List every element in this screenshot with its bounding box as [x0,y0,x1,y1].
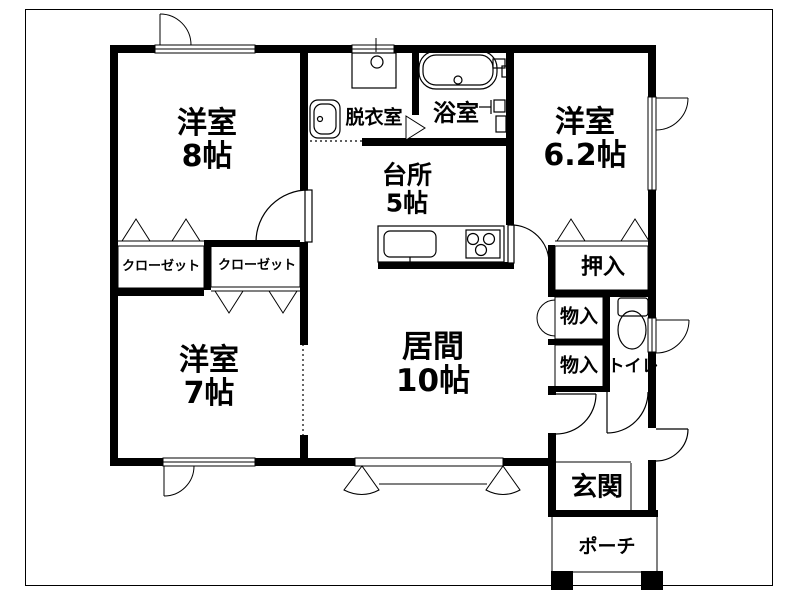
room-name: ポーチ [578,537,635,558]
room-name: 台所 [382,162,432,190]
room-name: 洋室 [179,344,239,377]
room-size: 5帖 [382,189,432,217]
label-bathroom: 浴室 [433,101,479,126]
label-closet-left: クローゼット [122,260,200,274]
room-size: 8帖 [177,140,237,173]
outer-frame [26,10,773,586]
room-name: 居間 [396,330,470,364]
label-kitchen: 台所 5帖 [382,162,432,217]
label-dressing-room: 脱衣室 [345,108,402,129]
room-size: 10帖 [396,364,470,398]
stove-icon [466,230,500,258]
door-swings [256,190,688,461]
label-porch: ポーチ [578,537,635,558]
label-closet-right: クローゼット [218,259,296,273]
toilet-icon [618,298,648,349]
room-name: クローゼット [122,260,200,274]
sliding-doors [303,141,362,436]
room-name: トイレ [608,358,659,377]
room-name: 洋室 [543,106,626,139]
room-name: 脱衣室 [345,108,402,129]
washer-pan-icon [352,53,396,88]
label-storage-upper: 物入 [560,307,598,328]
floor-plan-drawing [0,0,800,600]
label-living-room: 居間 10帖 [396,330,470,398]
room-name: 物入 [560,356,598,377]
room-name: 押入 [581,256,625,280]
room-name: 洋室 [177,107,237,140]
label-bedroom-7: 洋室 7帖 [179,344,239,410]
room-name: 玄関 [571,474,623,503]
floor-plan: 洋室 8帖 クローゼット クローゼット 洋室 7帖 脱衣室 浴室 台所 5帖 洋… [0,0,800,600]
label-storage-lower: 物入 [560,356,598,377]
bath-faucet-icon [479,100,506,132]
label-oshiire: 押入 [581,256,625,280]
room-name: 物入 [560,307,598,328]
room-name: クローゼット [218,259,296,273]
label-toilet: トイレ [608,358,659,377]
kitchen-counter-icon [378,226,504,269]
label-entrance: 玄関 [571,474,623,503]
porch-pillars [551,571,663,590]
room-size: 7帖 [179,377,239,410]
label-bedroom-62: 洋室 6.2帖 [543,106,626,172]
basin-sink-icon [310,100,340,138]
room-name: 浴室 [433,101,479,126]
fixtures [310,46,648,349]
room-size: 6.2帖 [543,139,626,172]
label-bedroom-8: 洋室 8帖 [177,107,237,173]
